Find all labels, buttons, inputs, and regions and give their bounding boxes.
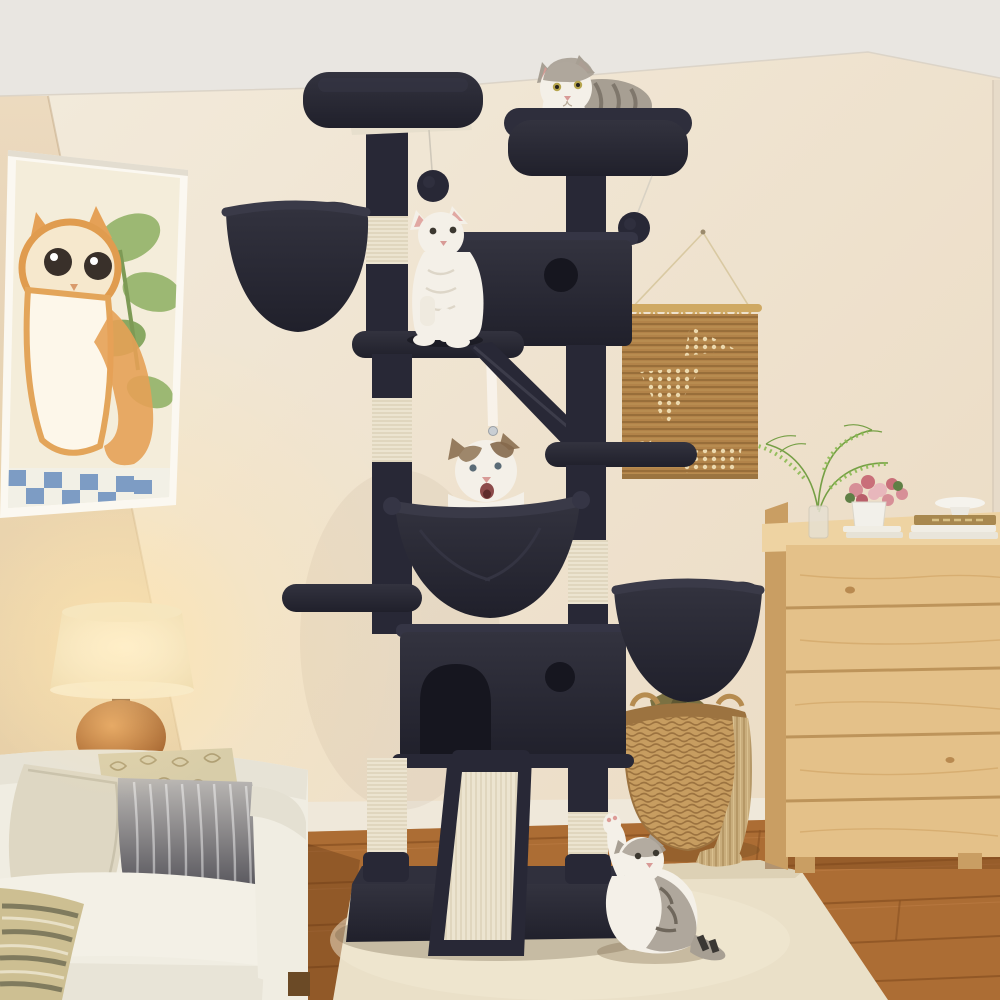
kitten-eye [653,850,659,856]
condo-porthole [545,662,575,692]
book [846,532,903,538]
cat-eye [430,228,437,235]
wall-art-cat-painting [0,150,195,520]
small-left-platform [282,584,422,612]
right-wall-edge [993,80,1000,524]
tree-base [346,750,638,956]
ribbon-bell [489,427,498,436]
sisal-post-bottom [568,812,608,860]
right-arm-platform [545,442,697,467]
kitten-front-leg [624,922,640,950]
open-mouth-inner [483,490,491,499]
cat-foreleg [420,296,435,326]
living-room-scene [0,0,1000,1000]
sisal-post-bottom [367,758,407,858]
pompom-sheen [624,218,636,230]
flower-pot [852,502,886,528]
wood-knot [946,757,955,763]
post [568,758,608,816]
dresser-leg [795,857,815,873]
cat-head [418,212,464,258]
paw-pad [613,816,617,820]
sisal-wrap [366,216,408,266]
cat-foot [413,334,435,346]
kitten-raised-paw [603,813,621,835]
book [909,532,998,539]
hammock-knob [383,497,401,515]
glass-vase [809,506,828,538]
post [366,126,408,222]
photo-canvas: Tall dark-charcoal multi-level cat tree … [0,0,1000,1000]
condo-porthole [544,258,578,292]
sisal-wrap [568,540,608,608]
cat-eye [469,464,476,471]
hammock-knob [572,491,590,509]
dresser-leg [958,853,982,869]
wood-knot [845,587,855,594]
perch-highlight [318,78,468,92]
book [843,526,901,532]
sisal-wrap [372,398,412,462]
dresser-side [765,502,788,870]
post [566,345,606,449]
cat-eye [450,227,457,234]
dresser-front [786,545,1000,857]
hanging-rod [616,304,762,312]
pompom-sheen [423,176,435,188]
cat-foreleg [438,308,452,342]
top-right-perch [508,120,688,176]
cat-pupil [576,83,580,87]
condo-arch-door [420,664,491,756]
sofa-leg [288,972,310,996]
kitten-eye [635,853,641,859]
cat-eye [494,462,501,469]
post-cuff [363,852,409,882]
post-cuff [565,854,611,884]
cat-foot [446,336,470,348]
cat-pupil [555,85,559,89]
art-content [0,150,195,520]
hanging-nail [701,230,706,235]
book [911,525,996,532]
paw-pad [607,818,611,822]
hanging-fringe [622,474,758,479]
ramp-cap [452,750,530,762]
post [366,264,408,336]
lower-condo [392,624,634,768]
